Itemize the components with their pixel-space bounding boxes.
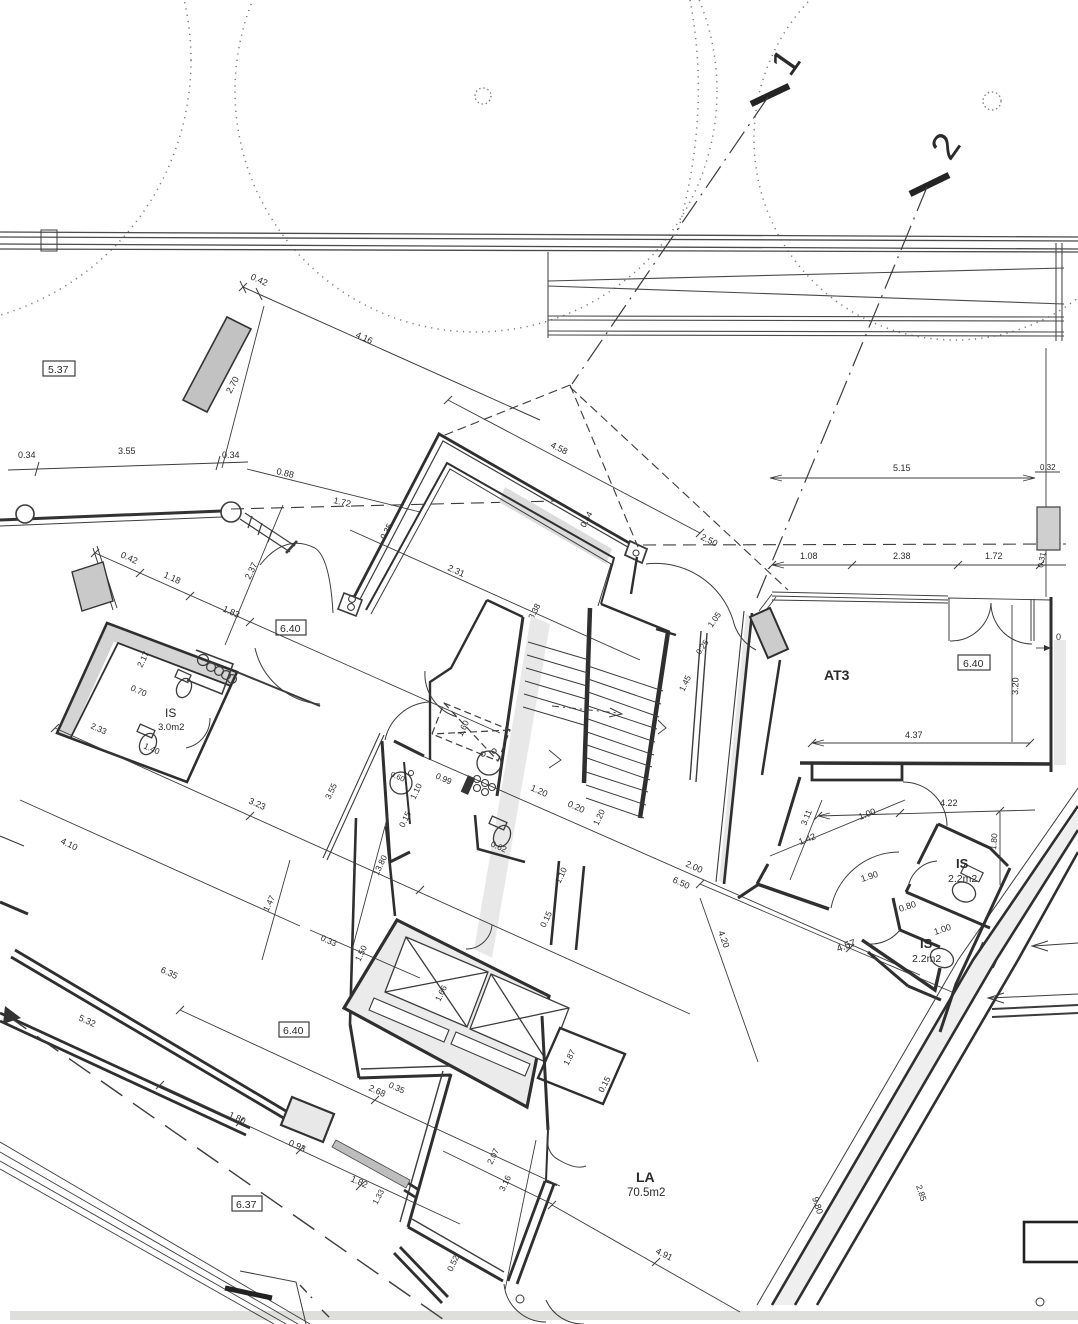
svg-text:IS: IS — [920, 936, 933, 951]
svg-text:3.55: 3.55 — [118, 446, 136, 456]
svg-text:6.40: 6.40 — [963, 658, 984, 670]
svg-text:4.37: 4.37 — [905, 730, 923, 740]
svg-text:3.20: 3.20 — [1010, 677, 1021, 695]
svg-text:6.40: 6.40 — [280, 623, 301, 635]
svg-text:5.15: 5.15 — [893, 463, 911, 473]
svg-text:0.32: 0.32 — [1040, 463, 1056, 472]
svg-text:0.34: 0.34 — [222, 450, 240, 460]
svg-text:2.38: 2.38 — [893, 551, 911, 561]
svg-text:3.0m2: 3.0m2 — [158, 722, 184, 733]
svg-text:AT3: AT3 — [824, 667, 850, 683]
svg-text:IS: IS — [956, 856, 969, 871]
svg-text:1.80: 1.80 — [988, 833, 999, 851]
svg-text:6.40: 6.40 — [283, 1025, 304, 1037]
svg-text:4.22: 4.22 — [940, 798, 958, 808]
svg-text:6.37: 6.37 — [236, 1199, 257, 1211]
svg-text:1.08: 1.08 — [800, 551, 818, 561]
svg-text:0.34: 0.34 — [18, 450, 36, 460]
svg-text:2.2m2: 2.2m2 — [912, 953, 941, 965]
svg-text:70.5m2: 70.5m2 — [627, 1187, 665, 1199]
svg-text:1.72: 1.72 — [985, 551, 1003, 561]
svg-text:IS: IS — [165, 706, 176, 720]
svg-text:2.2m2: 2.2m2 — [948, 873, 977, 885]
svg-text:0: 0 — [1056, 632, 1061, 642]
svg-text:LA: LA — [636, 1169, 655, 1185]
svg-text:5.37: 5.37 — [48, 364, 69, 376]
